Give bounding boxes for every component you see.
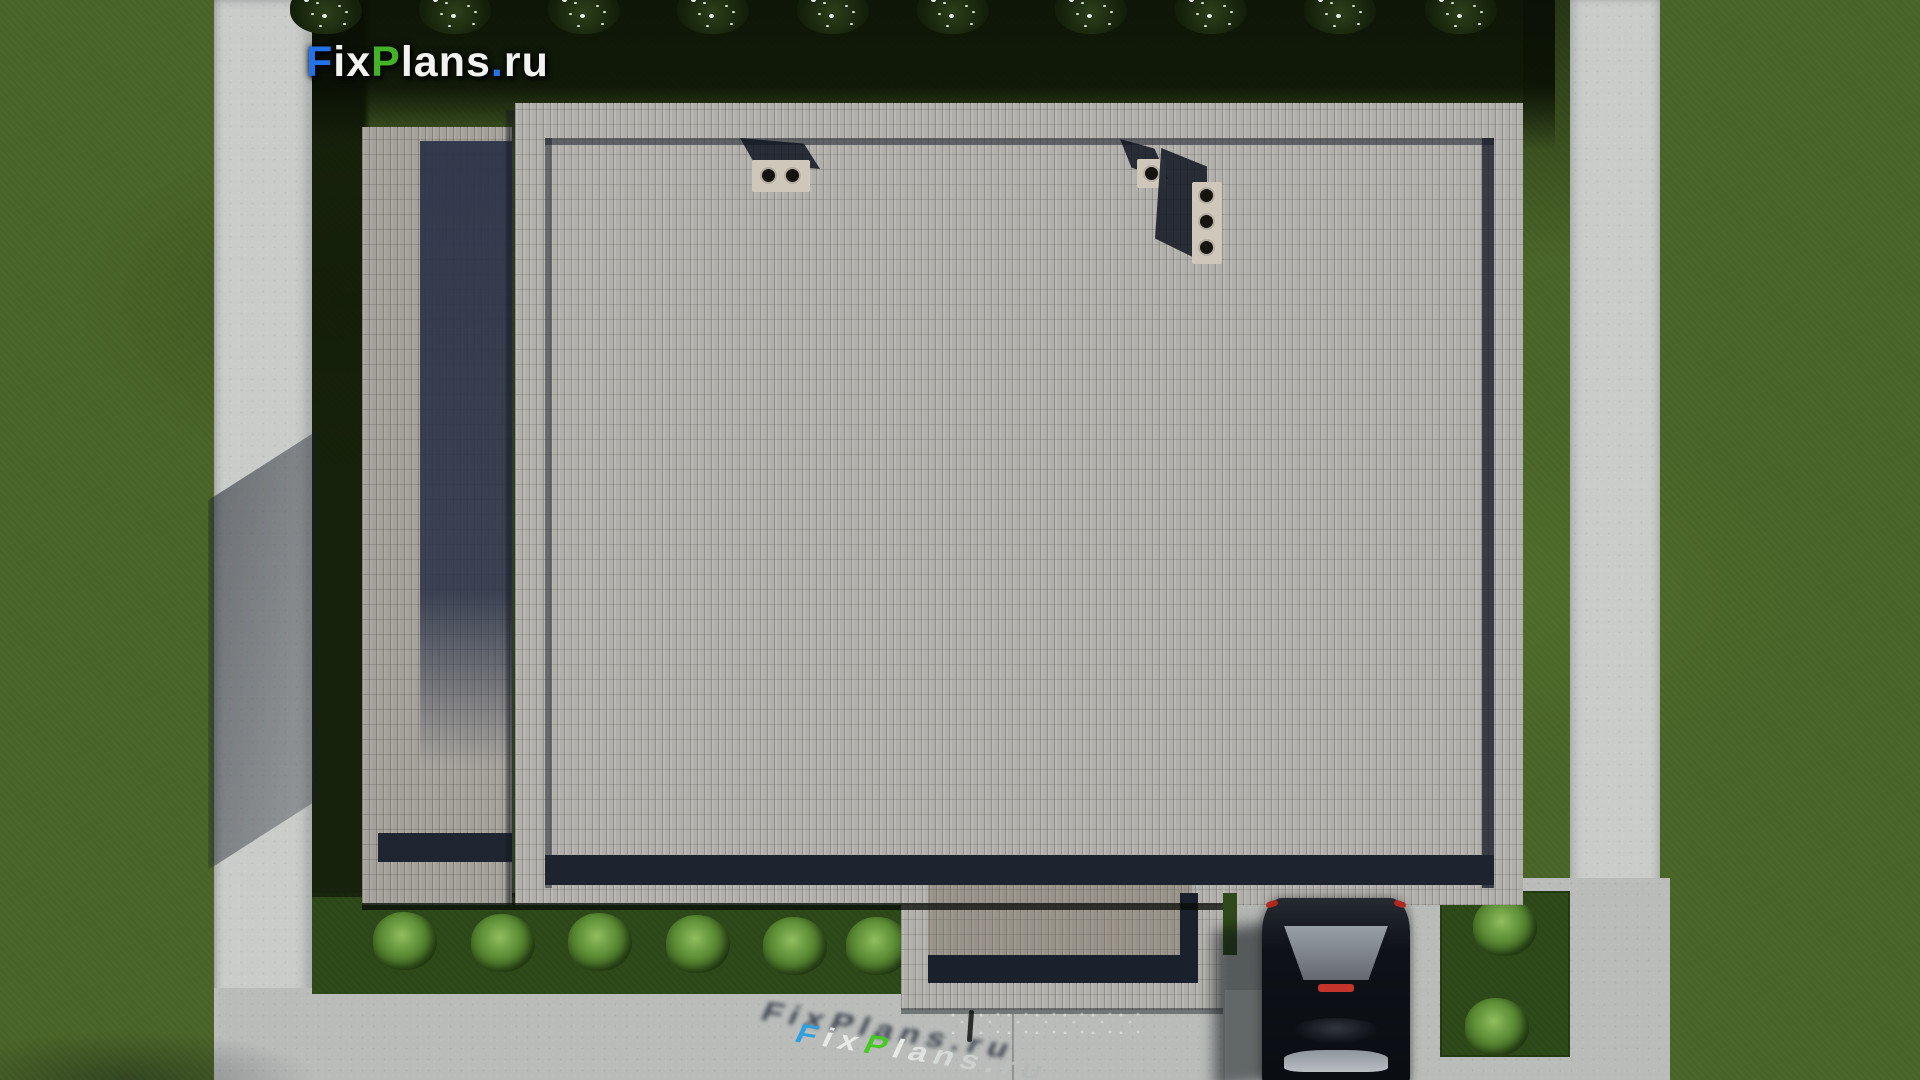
main-roof: [515, 103, 1523, 905]
logo-letter: s: [466, 38, 491, 87]
wing-glazed-strip: [420, 141, 512, 766]
logo-letter: u: [1015, 1054, 1049, 1080]
vent-circle-icon: [1198, 239, 1215, 256]
logo-letter: F: [306, 38, 333, 87]
green-bush: [471, 914, 535, 972]
logo-letter: P: [858, 1029, 893, 1062]
green-bush: [666, 915, 730, 973]
parked-car: [1262, 898, 1410, 1080]
porch-recess-tint: [928, 885, 1192, 958]
car-roof-highlight: [1292, 1018, 1380, 1044]
vent-circle-icon: [1198, 213, 1215, 230]
parapet-groove-right: [1482, 138, 1494, 888]
building-shadow-on-walkway: [208, 430, 318, 870]
green-bush: [373, 912, 437, 970]
left-wing-roof: [362, 127, 512, 905]
logo-letter: .: [491, 38, 504, 87]
corner-shade: [0, 1030, 320, 1080]
green-bush: [763, 917, 827, 975]
car-windshield: [1284, 1050, 1388, 1072]
parapet-shadow-band-bottom: [545, 855, 1494, 885]
logo-letter: a: [414, 38, 439, 87]
site-plan-render: FixPlans.ru FixPlans.ru FixPlans.ru: [0, 0, 1920, 1080]
green-bush: [568, 913, 632, 971]
parapet-groove-left: [545, 138, 552, 888]
roof-edge-shadow-line: [362, 903, 1223, 910]
car-rear-window: [1282, 926, 1390, 980]
parapet-groove-top: [545, 138, 1494, 145]
vent-circle-icon: [760, 167, 777, 184]
porch-edge-shadow-horizontal: [928, 955, 1198, 983]
vent-circle-icon: [1198, 187, 1215, 204]
vent-circle-icon: [1143, 165, 1160, 182]
logo-letter: i: [333, 38, 346, 87]
wing-parapet-shadow-band: [378, 833, 512, 862]
logo-letter: r: [504, 38, 522, 87]
car-brake-light-strip: [1318, 984, 1354, 992]
logo-letter: n: [439, 38, 466, 87]
chimney-twin-vent: [752, 160, 810, 192]
logo-letter: u: [522, 38, 549, 87]
green-bush: [1465, 998, 1529, 1056]
green-bush: [1473, 898, 1537, 956]
chimney-triple-vent: [1192, 182, 1222, 264]
vent-circle-icon: [784, 167, 801, 184]
logo-letter: P: [371, 38, 401, 87]
logo-letter: l: [401, 38, 414, 87]
fixplans-logo: FixPlans.ru: [306, 38, 549, 87]
logo-letter: x: [346, 38, 371, 87]
